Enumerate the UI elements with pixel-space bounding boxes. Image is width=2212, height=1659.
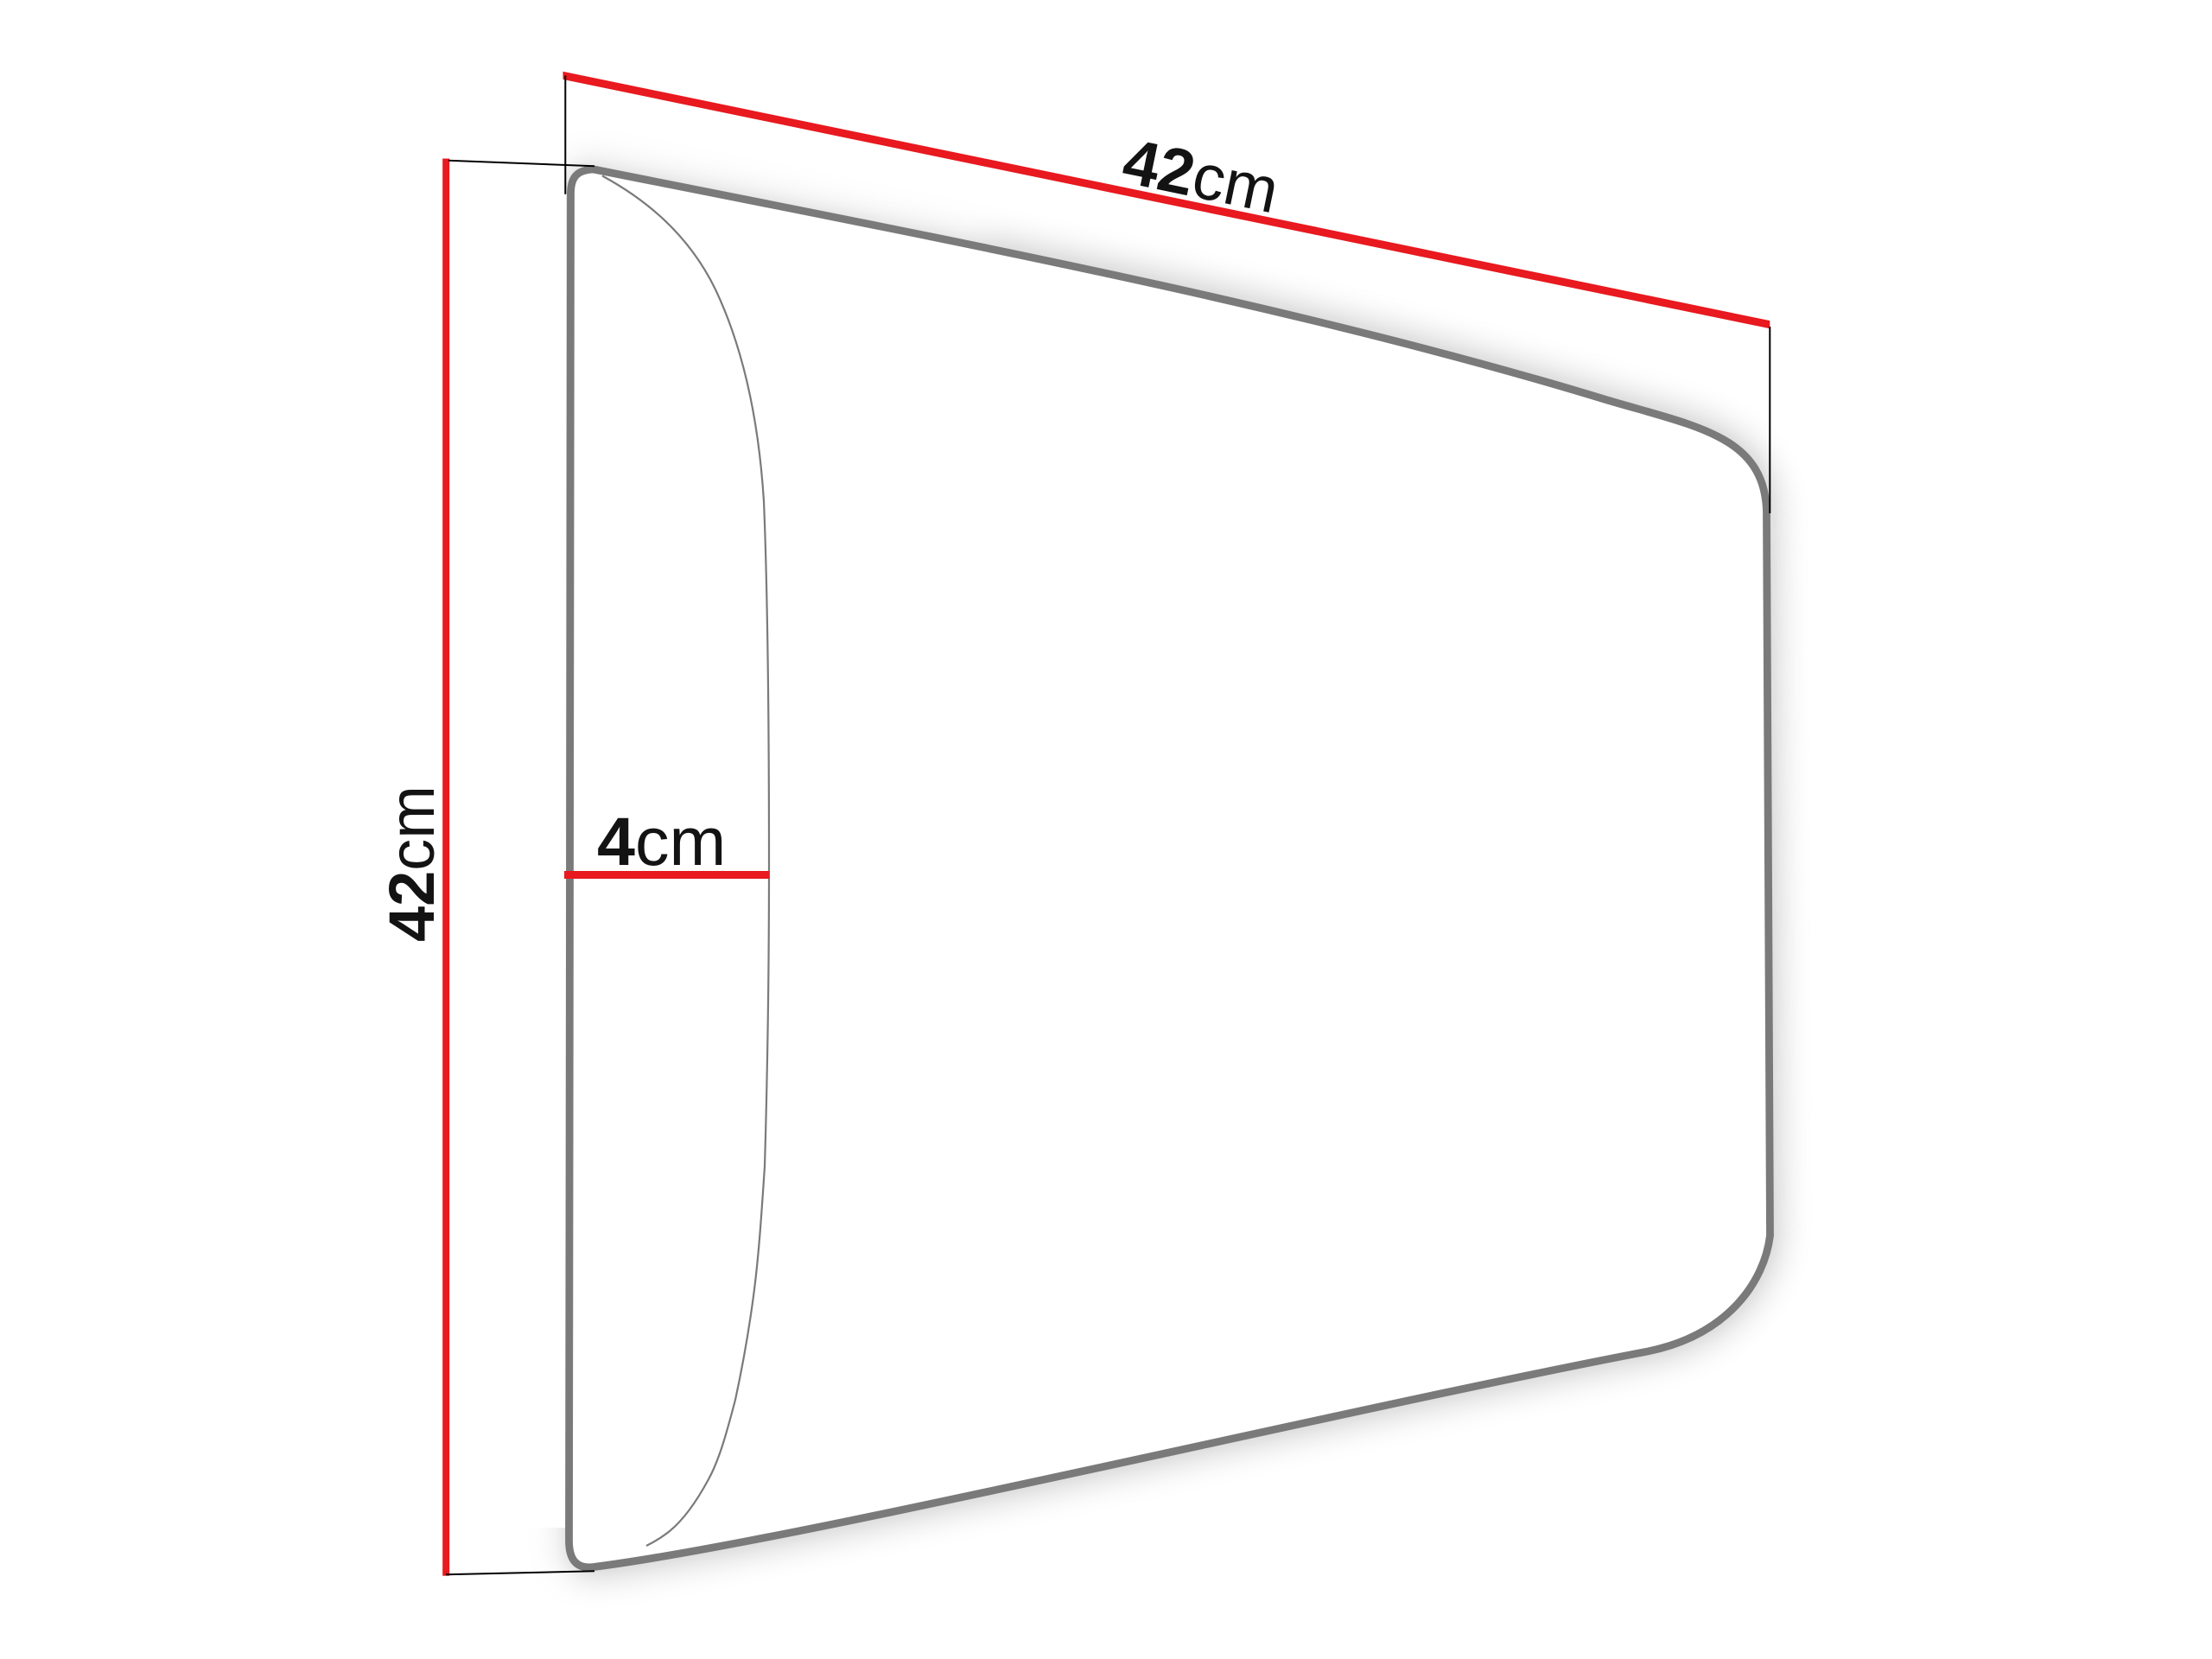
svg-text:4cm: 4cm xyxy=(597,803,726,880)
svg-text:42cm: 42cm xyxy=(376,785,448,942)
